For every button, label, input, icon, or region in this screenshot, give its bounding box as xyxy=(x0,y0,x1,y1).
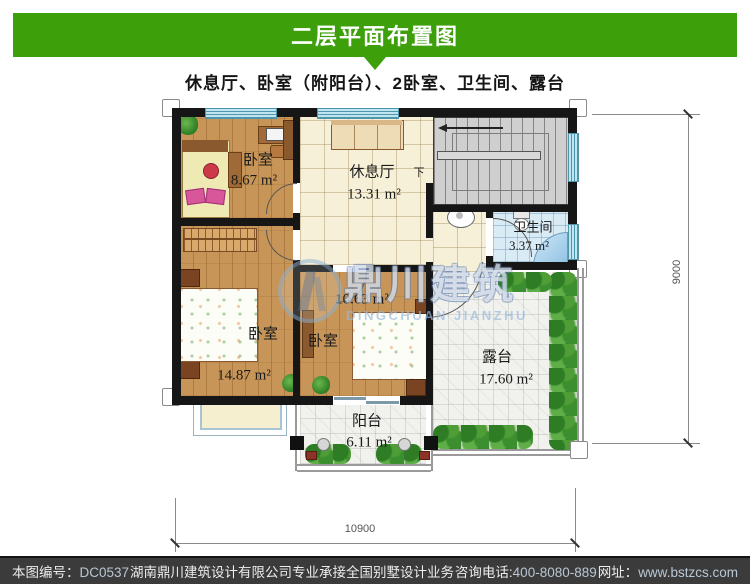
bed-headboard xyxy=(182,140,228,152)
phone-label: 咨询电话: xyxy=(455,565,513,580)
sliding-door-panel xyxy=(334,397,366,400)
room-area-lounge: 13.31 m² xyxy=(347,187,401,204)
dimension-extension-line xyxy=(592,443,700,444)
window xyxy=(205,108,277,119)
phone: 咨询电话:400-8080-889 xyxy=(455,561,597,581)
terrace-railing xyxy=(577,268,579,454)
room-name-bedroom-bottom-left: 卧室 xyxy=(248,323,278,344)
room-name-bedroom-top-left: 卧室 xyxy=(243,149,273,170)
room-area-bedroom-middle: 10.63 m² xyxy=(335,292,389,309)
footer-bar: 本图编号：DC0537 湖南鼎川建筑设计有限公司专业承接全国别墅设计业务 咨询电… xyxy=(0,556,750,584)
title-bar: 二层平面布置图 xyxy=(13,13,737,57)
pink-pillow xyxy=(205,188,226,205)
terrace-hedge xyxy=(498,272,552,292)
pink-pillow xyxy=(185,188,206,205)
flower-pot xyxy=(398,438,411,451)
website-value: www.bstzcs.com xyxy=(638,565,738,580)
room-area-bedroom-top-left: 8.67 m² xyxy=(231,173,277,190)
website: 网址：www.bstzcs.com xyxy=(598,561,738,581)
plan-subtitle: 休息厅、卧室（附阳台）、2卧室、卫生间、露台 xyxy=(0,69,750,94)
dimension-line-bottom xyxy=(175,543,576,544)
terrace-hedge xyxy=(549,272,577,450)
terrace-hedge xyxy=(433,425,533,449)
stair-direction-arrow xyxy=(438,124,447,132)
drawing-id-label: 本图编号： xyxy=(12,565,80,580)
washbasin-drain xyxy=(456,212,463,219)
wall xyxy=(172,396,301,405)
flower-pot xyxy=(419,451,430,460)
room-area-bathroom: 3.37 m² xyxy=(509,238,549,254)
flower-pot xyxy=(317,438,330,451)
window xyxy=(568,133,579,182)
nightstand xyxy=(180,269,200,287)
wall xyxy=(300,265,333,272)
monitor xyxy=(266,128,284,141)
nightstand xyxy=(180,361,200,379)
room-area-balcony: 6.11 m² xyxy=(346,435,392,452)
stair-well-outline xyxy=(452,133,549,191)
wall xyxy=(366,265,426,272)
phone-value: 400-8080-889 xyxy=(513,565,597,580)
room-name-bedroom-middle: 卧室 xyxy=(308,330,338,351)
window xyxy=(568,224,579,260)
sofa-back xyxy=(331,120,402,125)
room-name-balcony: 阳台 xyxy=(352,410,382,431)
floor-plan-page: { "header": { "title": "二层平面布置图" }, "sub… xyxy=(0,0,750,584)
wall xyxy=(293,117,300,183)
cushion xyxy=(203,163,219,179)
window xyxy=(317,108,399,119)
wall xyxy=(486,262,577,270)
stair-direction-line xyxy=(447,127,503,129)
company-slogan: 湖南鼎川建筑设计有限公司专业承接全国别墅设计业务 xyxy=(130,561,454,581)
wall xyxy=(294,396,333,405)
dimension-value-right: 9000 xyxy=(671,260,683,284)
drawing-id-value: DC0537 xyxy=(80,565,130,580)
dimension-extension-line xyxy=(592,114,700,115)
corner-pilaster xyxy=(570,441,588,459)
dimension-line-right xyxy=(688,114,689,444)
room-name-lounge: 休息厅 xyxy=(349,161,394,182)
balcony-column xyxy=(424,436,438,450)
page-title: 二层平面布置图 xyxy=(291,19,459,51)
balcony-column xyxy=(290,436,304,450)
wardrobe xyxy=(183,228,257,252)
room-name-terrace: 露台 xyxy=(482,346,512,367)
terrace-railing xyxy=(582,268,584,454)
double-bed xyxy=(352,312,430,380)
wall xyxy=(426,183,433,238)
potted-plant-icon xyxy=(312,376,330,394)
website-label: 网址： xyxy=(598,565,639,580)
wall xyxy=(426,205,577,212)
stairs-down-label: 下 xyxy=(414,164,425,180)
stair-handrail xyxy=(437,151,541,160)
room-area-terrace: 17.60 m² xyxy=(479,372,533,389)
drawing-id: 本图编号：DC0537 xyxy=(12,561,129,581)
wall xyxy=(486,212,493,218)
nightstand xyxy=(406,379,426,396)
terrace-railing xyxy=(433,454,579,456)
dimension-value-bottom: 10900 xyxy=(345,523,376,535)
wall xyxy=(172,218,300,226)
wall xyxy=(426,396,433,405)
flower-pot xyxy=(306,451,317,460)
balcony-railing xyxy=(297,464,431,466)
potted-plant-icon xyxy=(178,115,198,135)
bay-window xyxy=(200,405,282,430)
balcony-railing xyxy=(297,470,431,472)
room-area-bedroom-bottom-left: 14.87 m² xyxy=(217,368,271,385)
double-bed xyxy=(180,288,258,362)
sliding-door-panel xyxy=(366,401,399,404)
wall xyxy=(293,260,300,396)
wall xyxy=(172,108,181,405)
room-name-bathroom: 卫生间 xyxy=(513,217,552,236)
